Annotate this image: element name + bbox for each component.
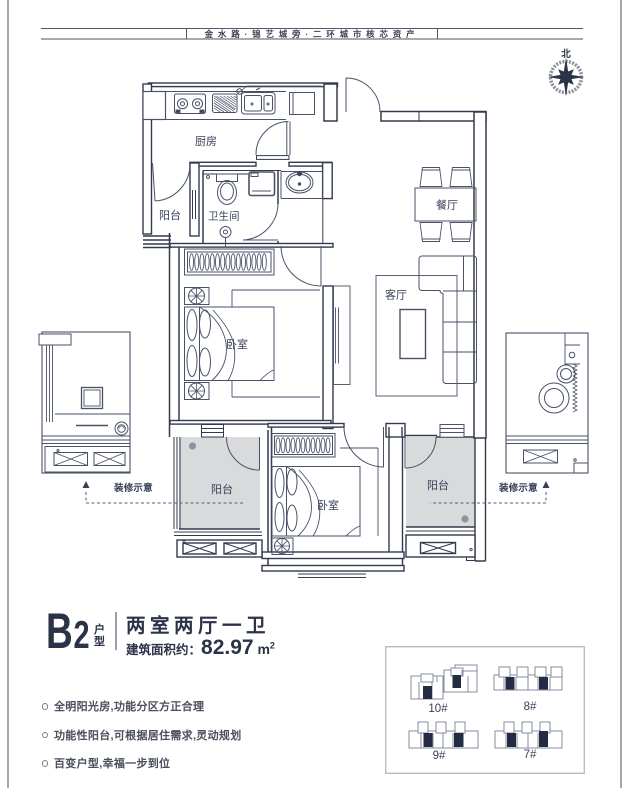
svg-text:阳台: 阳台 — [211, 482, 233, 496]
svg-text:客厅: 客厅 — [385, 288, 407, 302]
svg-text:装修示意: 装修示意 — [113, 482, 153, 494]
svg-text:餐厅: 餐厅 — [436, 198, 458, 212]
svg-text:10#: 10# — [428, 703, 448, 715]
svg-text:卫生间: 卫生间 — [208, 210, 240, 223]
svg-text:9#: 9# — [433, 750, 446, 762]
svg-text:厨房: 厨房 — [195, 135, 217, 148]
svg-text:7#: 7# — [524, 749, 537, 761]
svg-text:卧室: 卧室 — [317, 498, 339, 512]
svg-text:8#: 8# — [524, 701, 537, 713]
svg-text:阳台: 阳台 — [427, 478, 449, 492]
svg-text:北: 北 — [561, 48, 571, 60]
svg-text:阳台: 阳台 — [159, 208, 181, 222]
svg-text:卧室: 卧室 — [226, 337, 248, 351]
svg-text:装修示意: 装修示意 — [498, 482, 538, 494]
